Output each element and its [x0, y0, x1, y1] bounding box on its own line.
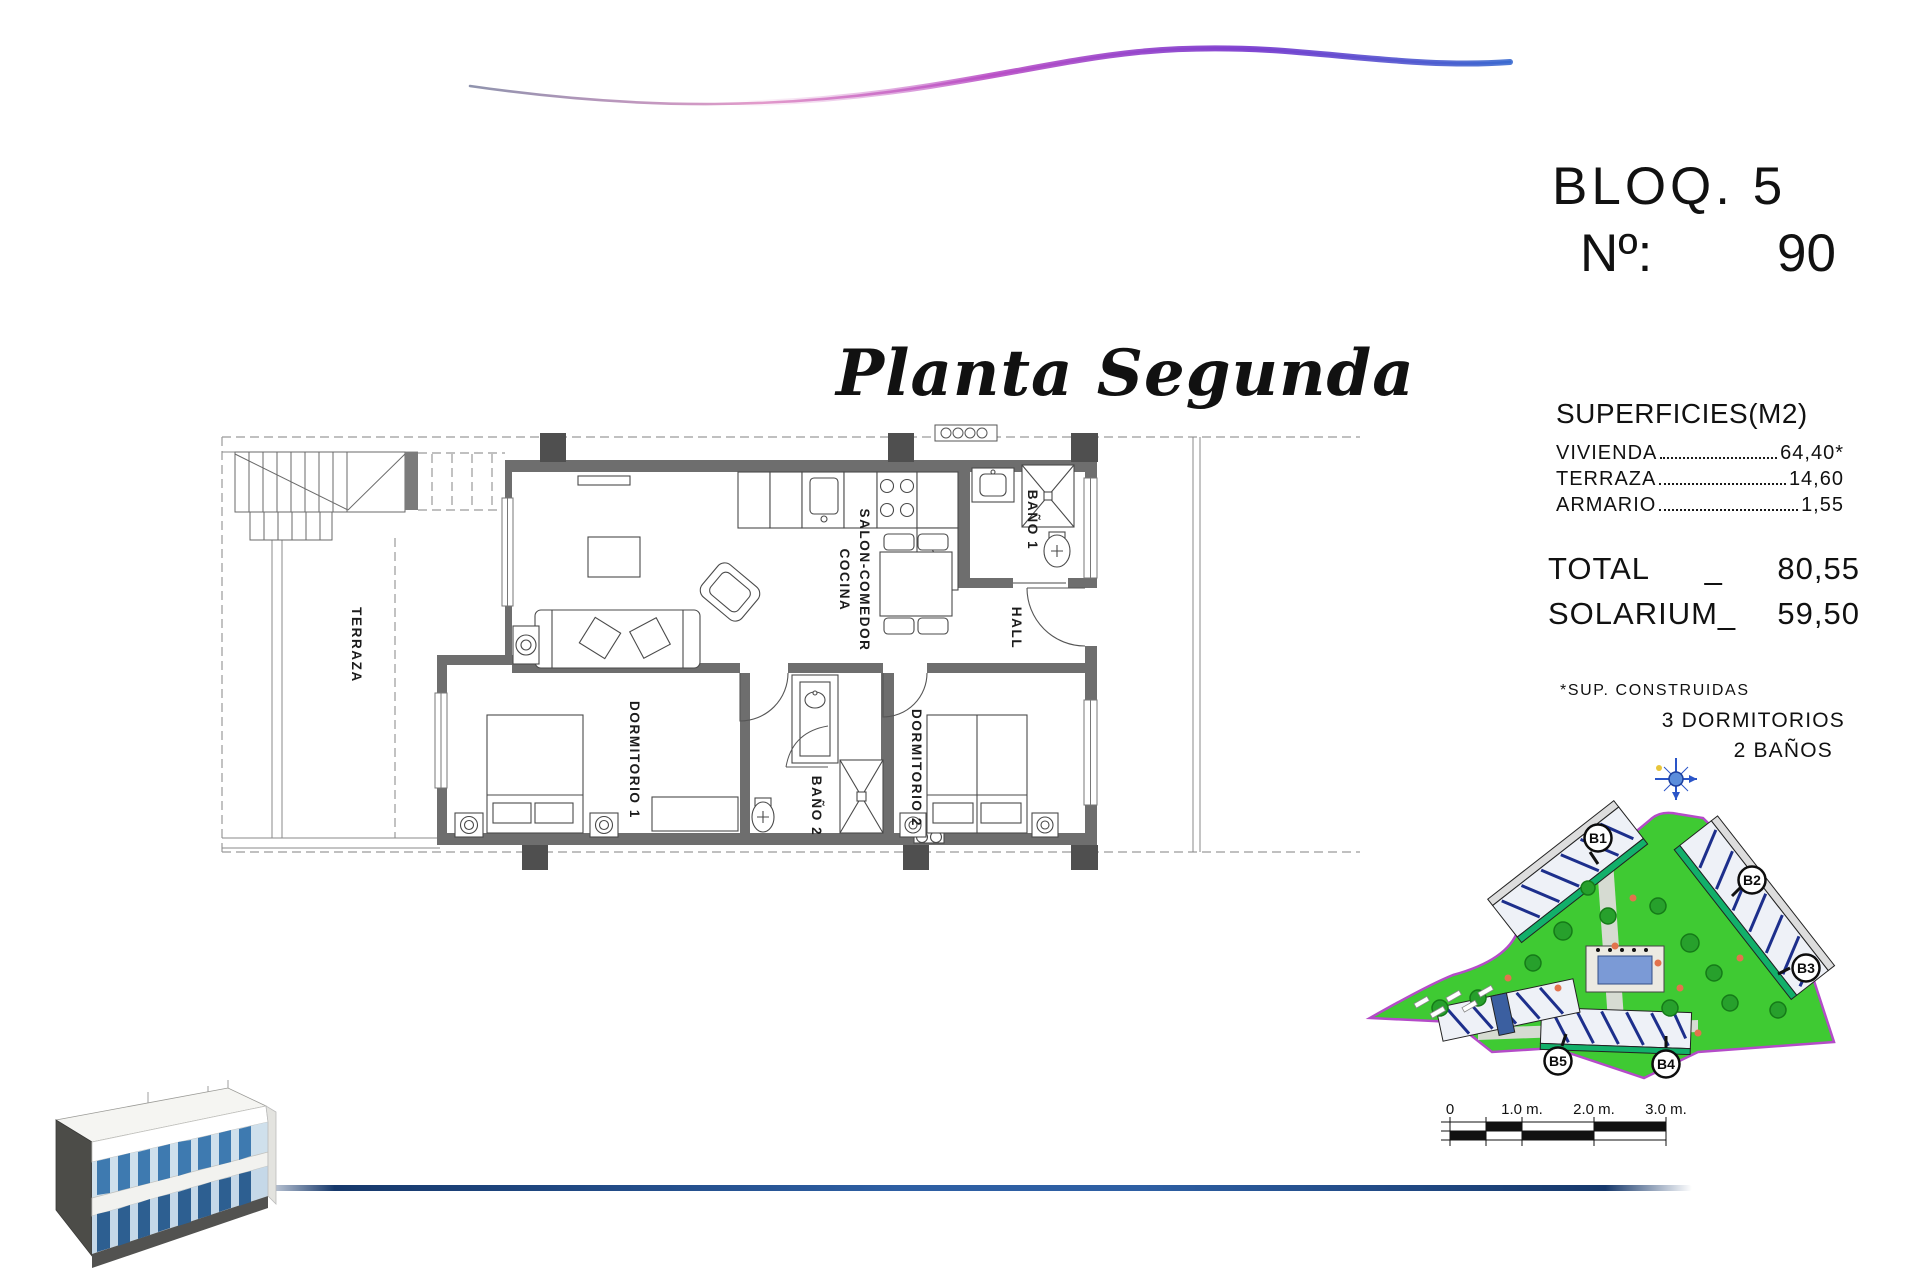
bottom-divider-line	[248, 1185, 1692, 1191]
totals-panel: TOTAL _ 80,55 SOLARIUM_ 59,50	[1548, 546, 1860, 636]
building-render	[28, 1078, 358, 1280]
closet-armario	[792, 675, 838, 763]
dining-table	[880, 534, 952, 634]
scale-bar: 0 1.0 m. 2.0 m. 3.0 m.	[1438, 1098, 1698, 1162]
unit-header: BLOQ. 5 Nº: 90	[1552, 156, 1852, 284]
total-separator: _	[1705, 546, 1723, 591]
solarium-value: 59,50	[1777, 591, 1860, 636]
surface-value: 1,55	[1801, 492, 1844, 518]
bedroom1-furniture	[455, 715, 738, 837]
site-label-b3: B3	[1797, 960, 1815, 976]
room-label-bano1: BAÑO 1	[1025, 490, 1040, 551]
pool-area	[1586, 946, 1664, 992]
number-value: 90	[1777, 223, 1836, 284]
site-label-b2: B2	[1743, 872, 1761, 888]
decorative-wave	[370, 28, 1530, 108]
stairs	[235, 452, 405, 540]
compass-icon	[1655, 758, 1697, 800]
coffee-table	[588, 537, 640, 577]
surfaces-panel: SUPERFICIES(M2) VIVIENDA 64,40* TERRAZA …	[1556, 398, 1844, 518]
scale-segments	[1441, 1117, 1666, 1146]
dotted-leader	[1660, 457, 1777, 459]
total-value: 80,55	[1777, 546, 1860, 591]
dotted-leader	[1659, 483, 1786, 485]
room-label-dormitorio2: DORMITORIO 2	[909, 709, 924, 827]
scale-tick-0: 0	[1446, 1101, 1454, 1118]
ac-unit	[935, 425, 997, 441]
stair-pillar	[405, 452, 418, 510]
entry-door	[1027, 588, 1085, 646]
fridge	[917, 472, 958, 528]
site-label-b5: B5	[1549, 1053, 1567, 1069]
bathroom1-fixtures	[972, 465, 1074, 583]
bedrooms-count: 3 DORMITORIOS	[1545, 706, 1845, 736]
tv-unit	[578, 476, 630, 485]
site-plan: B1 B2 B3 B4 B5	[1358, 756, 1878, 1090]
solarium-row: SOLARIUM_ 59,50	[1548, 591, 1860, 636]
surface-row: TERRAZA 14,60	[1556, 466, 1844, 492]
solarium-label: SOLARIUM_	[1548, 591, 1736, 636]
room-label-hall: HALL	[1009, 607, 1024, 649]
room-label-bano2: BAÑO 2	[809, 776, 824, 837]
surface-value: 14,60	[1789, 466, 1844, 492]
scale-tick-1: 1.0 m.	[1501, 1101, 1543, 1118]
surface-label: TERRAZA	[1556, 466, 1656, 492]
scale-tick-3: 3.0 m.	[1645, 1101, 1687, 1118]
total-row: TOTAL _ 80,55	[1548, 546, 1860, 591]
room-label-terraza: TERRAZA	[349, 607, 364, 683]
total-label: TOTAL	[1548, 546, 1650, 591]
dresser	[652, 797, 738, 831]
footnote: *SUP. CONSTRUIDAS	[1560, 682, 1750, 700]
page-title: Planta Segunda	[836, 336, 1356, 411]
site-label-b4: B4	[1657, 1056, 1675, 1072]
number-label: Nº:	[1580, 223, 1652, 284]
dotted-leader	[1659, 509, 1798, 511]
surface-label: ARMARIO	[1556, 492, 1656, 518]
scale-tick-2: 2.0 m.	[1573, 1101, 1615, 1118]
room-label-dormitorio1: DORMITORIO 1	[627, 701, 642, 819]
block-label: BLOQ. 5	[1552, 156, 1852, 217]
floor-plan: TERRAZA SALON-COMEDOR COCINA BAÑO 1 HALL…	[200, 420, 1370, 880]
living-room-furniture	[513, 476, 763, 668]
surface-label: VIVIENDA	[1556, 440, 1657, 466]
room-label-salon: SALON-COMEDOR	[857, 508, 872, 651]
site-label-b1: B1	[1589, 830, 1607, 846]
surface-row: ARMARIO 1,55	[1556, 492, 1844, 518]
side-table	[513, 626, 539, 664]
room-label-cocina: COCINA	[837, 549, 852, 612]
surface-value: 64,40*	[1780, 440, 1844, 466]
surfaces-heading: SUPERFICIES(M2)	[1556, 398, 1844, 430]
armchair	[697, 559, 764, 625]
surface-row: VIVIENDA 64,40*	[1556, 440, 1844, 466]
plan-sheet: BLOQ. 5 Nº: 90 Planta Segunda SUPERFICIE…	[0, 0, 1920, 1280]
